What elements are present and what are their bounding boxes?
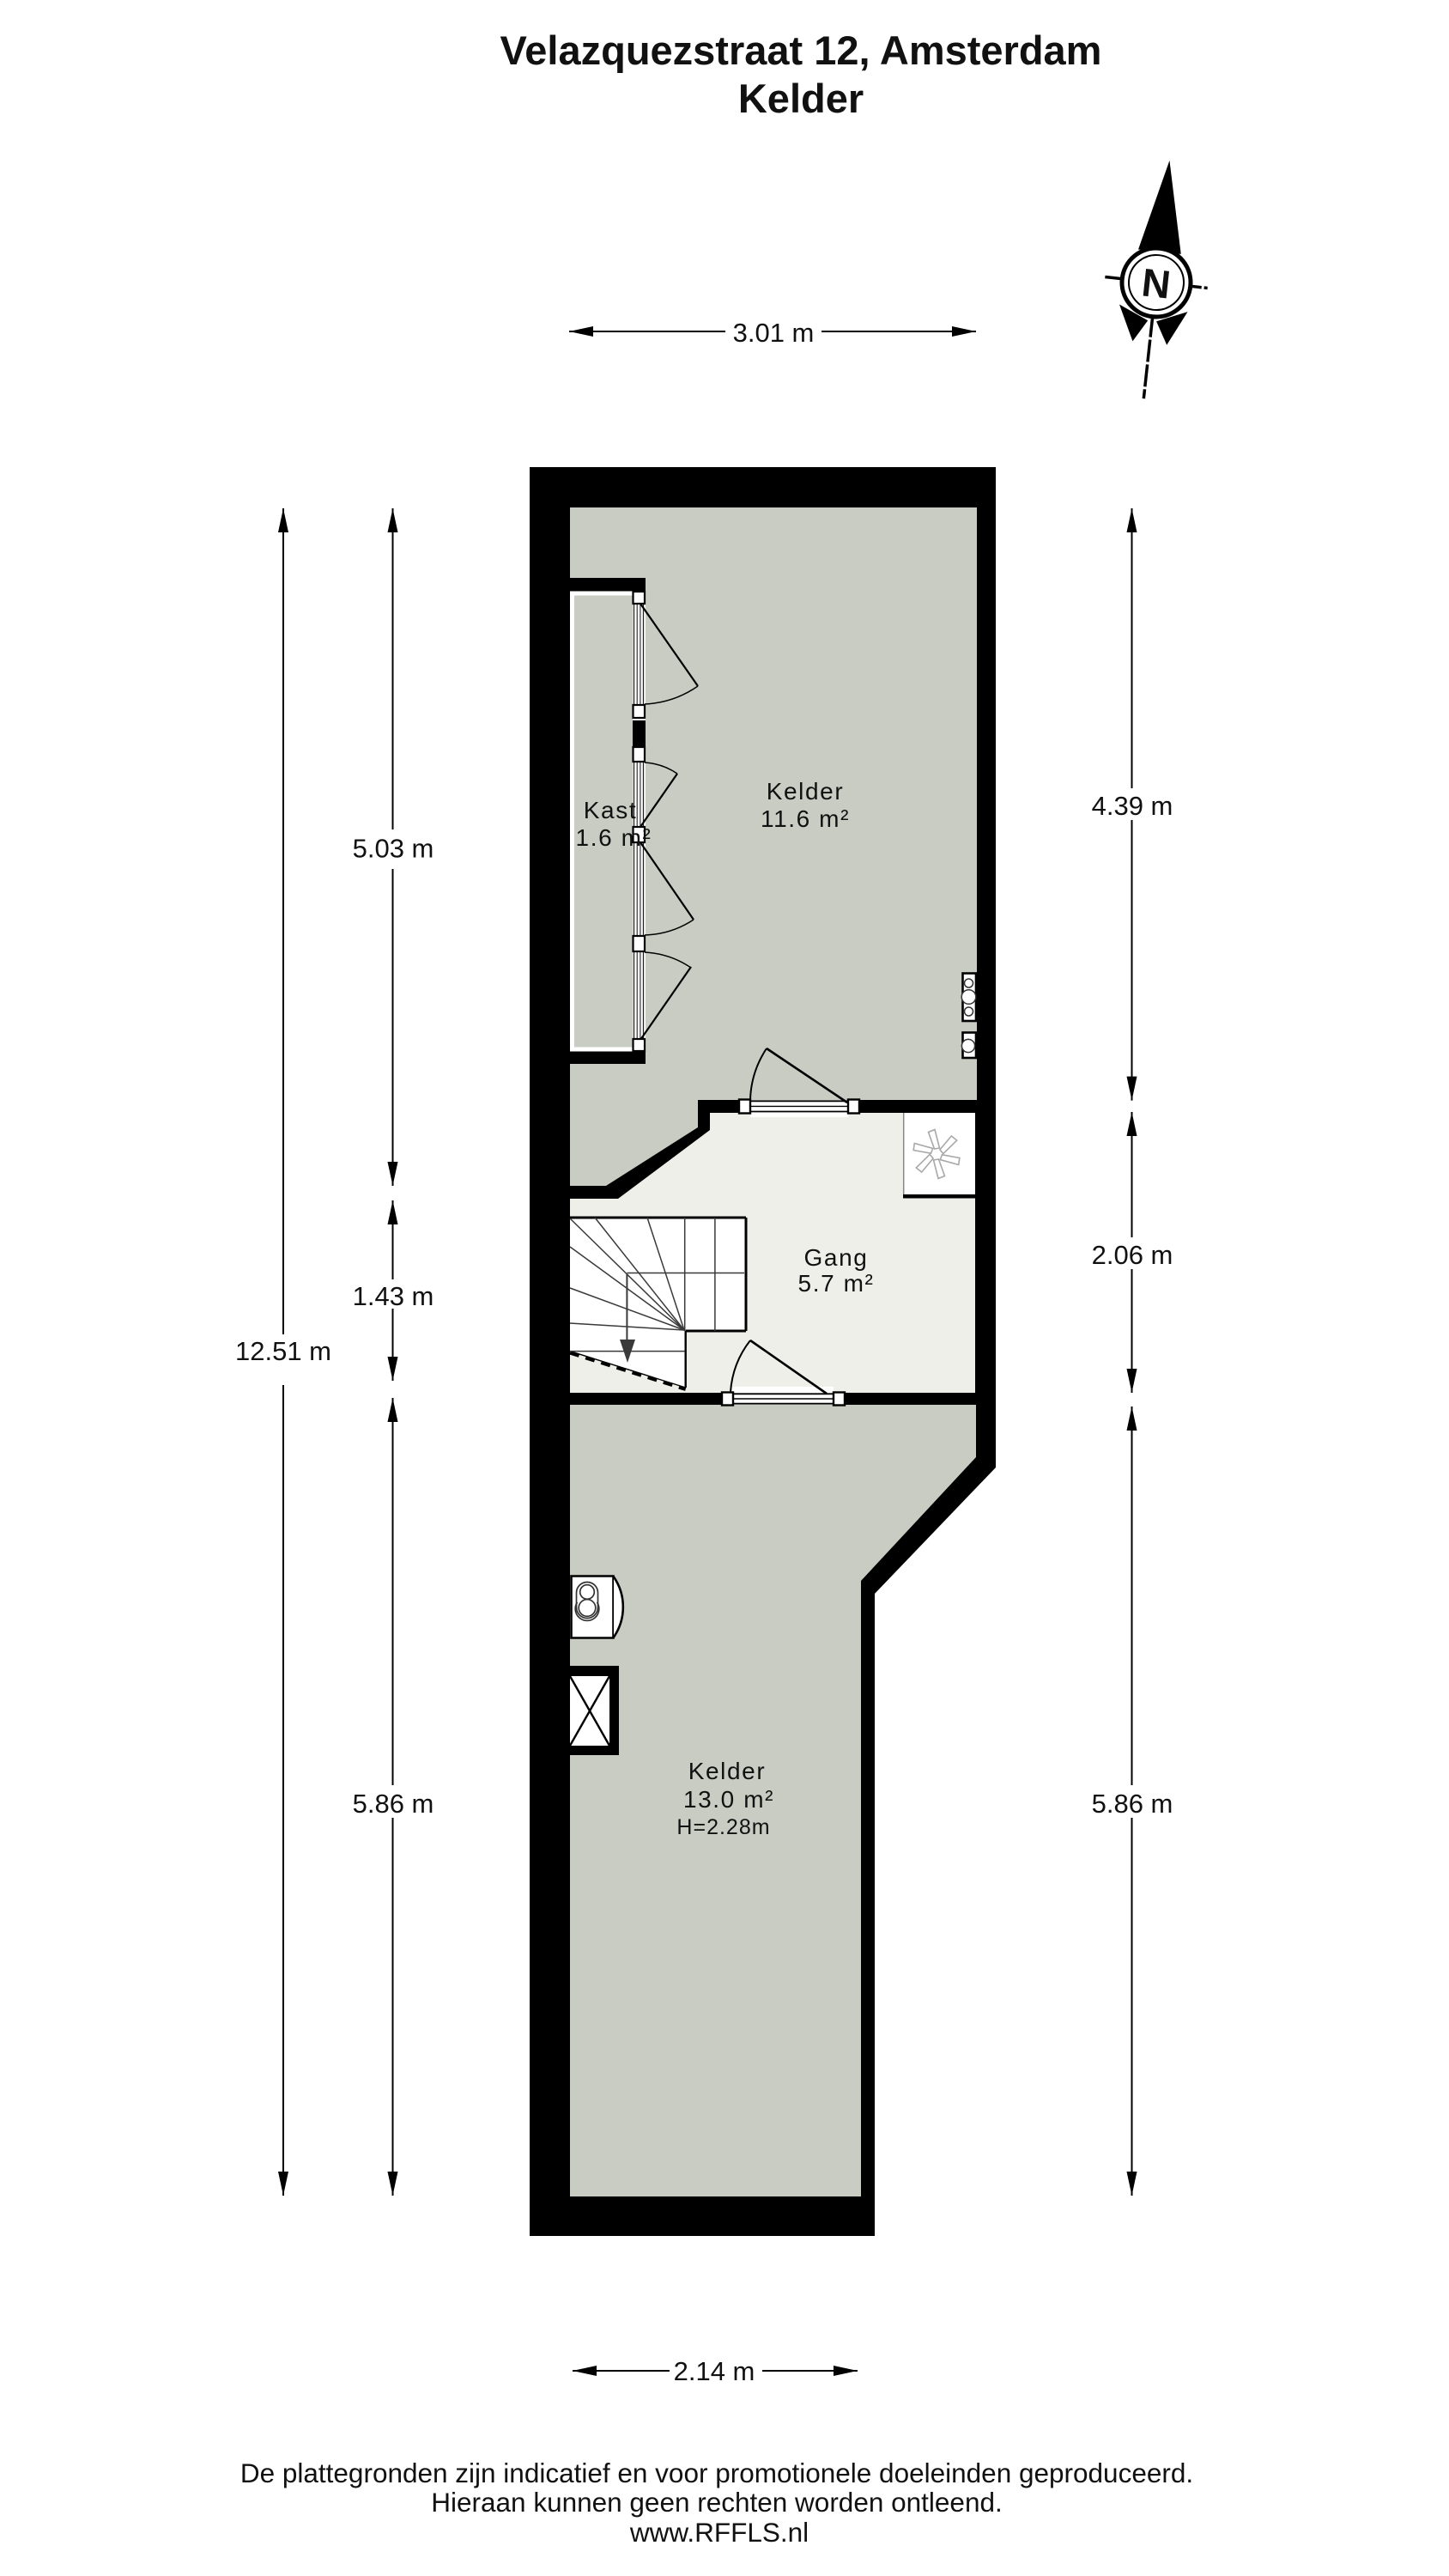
svg-text:H=2.28m: H=2.28m (676, 1815, 770, 1839)
svg-text:2.06 m: 2.06 m (1092, 1240, 1173, 1270)
svg-text:Velazquezstraat 12, Amsterdam: Velazquezstraat 12, Amsterdam (500, 27, 1102, 73)
svg-text:3.01 m: 3.01 m (733, 318, 815, 348)
svg-text:Kast: Kast (584, 797, 637, 823)
svg-text:1.6 m²: 1.6 m² (576, 824, 652, 851)
svg-text:1.43 m: 1.43 m (353, 1281, 434, 1311)
svg-text:Kelder: Kelder (767, 778, 845, 805)
svg-text:Hieraan kunnen geen rechten wo: Hieraan kunnen geen rechten worden ontle… (431, 2487, 1002, 2518)
svg-text:N: N (1140, 259, 1173, 307)
svg-text:De plattegronden zijn indicati: De plattegronden zijn indicatief en voor… (240, 2458, 1193, 2488)
svg-text:Gang: Gang (804, 1244, 869, 1271)
svg-text:12.51 m: 12.51 m (235, 1336, 331, 1366)
svg-text:5.7 m²: 5.7 m² (798, 1270, 875, 1297)
svg-text:4.39 m: 4.39 m (1092, 791, 1173, 821)
svg-text:5.86 m: 5.86 m (353, 1789, 434, 1819)
svg-text:www.RFFLS.nl: www.RFFLS.nl (629, 2517, 809, 2548)
svg-text:11.6 m²: 11.6 m² (761, 805, 850, 832)
svg-text:2.14 m: 2.14 m (674, 2356, 755, 2386)
svg-text:5.86 m: 5.86 m (1092, 1789, 1173, 1819)
svg-text:5.03 m: 5.03 m (353, 834, 434, 864)
svg-text:Kelder: Kelder (688, 1758, 767, 1784)
svg-text:13.0 m²: 13.0 m² (683, 1786, 774, 1813)
svg-text:Kelder: Kelder (738, 76, 864, 121)
